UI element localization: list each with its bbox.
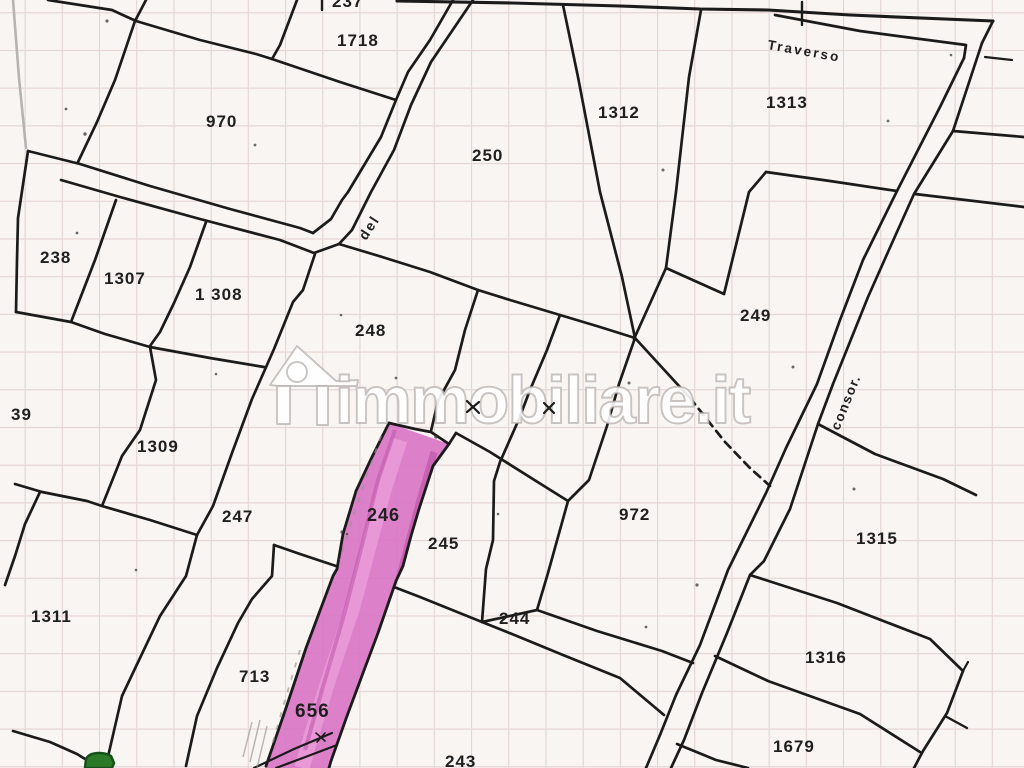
svg-text:243: 243 [445, 752, 476, 768]
svg-text:1 308: 1 308 [195, 285, 243, 304]
svg-text:246: 246 [367, 505, 400, 525]
svg-text:1311: 1311 [31, 607, 72, 626]
svg-text:1309: 1309 [137, 437, 179, 456]
svg-text:1315: 1315 [856, 529, 898, 548]
svg-text:237: 237 [332, 0, 363, 11]
svg-text:250: 250 [472, 146, 503, 165]
svg-text:1313: 1313 [766, 93, 808, 112]
svg-text:247: 247 [222, 507, 253, 526]
svg-text:238: 238 [40, 248, 71, 267]
svg-text:immobiliare.it: immobiliare.it [335, 363, 751, 438]
svg-text:1679: 1679 [773, 737, 815, 756]
svg-text:713: 713 [239, 667, 270, 686]
svg-text:245: 245 [428, 534, 459, 553]
svg-text:972: 972 [619, 505, 650, 524]
svg-text:249: 249 [740, 306, 771, 325]
svg-text:656: 656 [295, 701, 330, 722]
svg-text:1312: 1312 [598, 103, 640, 122]
svg-text:1307: 1307 [104, 269, 146, 288]
svg-text:970: 970 [206, 112, 237, 131]
svg-text:39: 39 [11, 405, 32, 424]
svg-text:244: 244 [499, 609, 530, 628]
svg-text:1316: 1316 [805, 648, 847, 667]
svg-text:248: 248 [355, 321, 386, 340]
svg-text:1718: 1718 [337, 31, 379, 50]
